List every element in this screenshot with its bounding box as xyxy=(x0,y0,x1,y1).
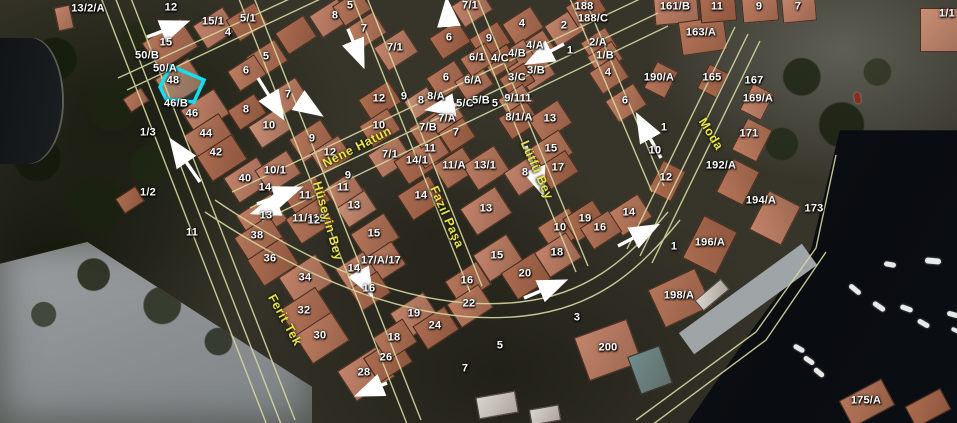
parcel-label: 22 xyxy=(463,299,476,310)
parcel-label: 8/A xyxy=(427,92,445,103)
parcel-label: 6 xyxy=(446,33,452,44)
parcel-label: 7/1 xyxy=(387,43,403,54)
parcel-label: 46/B xyxy=(164,99,188,110)
parcel-label: 12 xyxy=(373,94,386,105)
parcel-label: 11 xyxy=(299,191,311,202)
street-name-label: Moda xyxy=(696,115,726,152)
parcel-label: 40 xyxy=(239,174,252,185)
parcel-label: 4 xyxy=(225,28,231,39)
parcel-label: 11/A xyxy=(442,161,465,172)
parcel-label: 5 xyxy=(347,1,353,12)
parcel-label: 12 xyxy=(165,3,178,14)
parcel-label: 4 xyxy=(519,19,525,30)
parcel-label: 200 xyxy=(599,343,618,354)
parcel-label: 6/A xyxy=(464,76,482,87)
parcel-label: 42 xyxy=(210,148,223,159)
parcel-label: 4/C xyxy=(491,54,509,65)
parcel-label: 48 xyxy=(167,76,180,87)
parcel-label: 50/A xyxy=(153,64,177,75)
parcel-label: 10 xyxy=(649,146,662,157)
parcel-label: 14 xyxy=(348,264,361,275)
parcel-label: 7 xyxy=(285,90,291,101)
parcel-label: 3 xyxy=(574,313,580,324)
parcel-label: 169/A xyxy=(743,94,773,105)
parcel-label: 7 xyxy=(361,24,367,35)
parcel-label: 8/1/A xyxy=(505,113,532,124)
parcel-label: 15 xyxy=(491,251,504,262)
parcel-label: 165 xyxy=(703,73,722,84)
parcel-label: 13 xyxy=(260,211,273,222)
parcel-label: 3/C xyxy=(508,73,526,84)
parcel-label: 46 xyxy=(186,109,199,120)
parcel-label: 188 xyxy=(575,2,594,13)
parcel-label: 19 xyxy=(408,309,421,320)
parcel-label: 1/2 xyxy=(140,188,156,199)
parcel-label: 18 xyxy=(388,333,401,344)
parcel-label: 5 xyxy=(497,341,503,352)
parcel-label: 10 xyxy=(263,121,276,132)
labels-layer: 13/2/A1215/141550/B50/A4846/B461/3444240… xyxy=(0,0,957,423)
parcel-label: 20 xyxy=(519,269,532,280)
parcel-label: 16 xyxy=(461,276,474,287)
parcel-label: 190/A xyxy=(644,73,674,84)
parcel-label: 15 xyxy=(160,38,173,49)
parcel-label: 2/A xyxy=(589,38,607,49)
parcel-label: 8 xyxy=(418,96,424,107)
parcel-label: 9 xyxy=(345,171,351,182)
map-canvas[interactable]: 13/2/A1215/141550/B50/A4846/B461/3444240… xyxy=(0,0,957,423)
parcel-label: 15 xyxy=(545,144,558,155)
parcel-label: 14 xyxy=(259,183,272,194)
parcel-label: 167 xyxy=(745,76,764,87)
parcel-label: 14/1 xyxy=(406,156,428,167)
parcel-label: 11 xyxy=(186,228,198,239)
parcel-label: 196/A xyxy=(695,238,725,249)
parcel-label: 175/A xyxy=(851,396,881,407)
parcel-label: 6/1 xyxy=(469,53,485,64)
parcel-label: 8 xyxy=(522,168,528,179)
parcel-label: 5/B xyxy=(472,96,490,107)
parcel-label: 6 xyxy=(443,73,449,84)
parcel-label: 9 xyxy=(401,92,407,103)
parcel-label: 1/B xyxy=(596,51,614,62)
parcel-label: 1 xyxy=(671,242,677,253)
parcel-label: 12 xyxy=(660,173,673,184)
parcel-label: 18 xyxy=(551,248,564,259)
parcel-label: 10/1 xyxy=(264,166,286,177)
parcel-label: 7/1 xyxy=(462,1,478,12)
parcel-label: 2 xyxy=(561,21,567,32)
parcel-label: 7 xyxy=(795,2,801,13)
street-name-label: Ferit Tek xyxy=(265,292,305,348)
parcel-label: 7/B xyxy=(419,123,437,134)
parcel-label: 6 xyxy=(622,96,628,107)
parcel-label: 34 xyxy=(299,273,312,284)
parcel-label: 14 xyxy=(623,208,636,219)
parcel-label: 38 xyxy=(251,231,264,242)
parcel-label: 173 xyxy=(805,204,824,215)
parcel-label: 7/A xyxy=(438,114,456,125)
parcel-label: 13 xyxy=(348,201,361,212)
parcel-label: 1 xyxy=(661,123,667,134)
parcel-label: 192/A xyxy=(706,161,736,172)
parcel-label: 9 xyxy=(309,134,315,145)
parcel-label: 4/B xyxy=(508,49,526,60)
parcel-label: 171 xyxy=(740,129,759,140)
parcel-label: 7 xyxy=(453,128,459,139)
parcel-label: 188/C xyxy=(578,14,608,25)
parcel-label: 12 xyxy=(308,216,321,227)
parcel-label: 15/1 xyxy=(202,17,224,28)
parcel-label: 16 xyxy=(363,284,376,295)
parcel-label: 15 xyxy=(368,229,381,240)
parcel-label: 4 xyxy=(605,68,611,79)
parcel-label: 5 xyxy=(492,99,498,110)
parcel-label: 198/A xyxy=(664,291,694,302)
parcel-label: 6 xyxy=(243,66,249,77)
parcel-label: 14 xyxy=(415,191,428,202)
parcel-label: 8 xyxy=(332,11,338,22)
parcel-label: 9 xyxy=(486,34,492,45)
parcel-label: 17 xyxy=(552,163,565,174)
parcel-label: 4/A xyxy=(526,41,544,52)
parcel-label: 30 xyxy=(314,331,327,342)
street-name-label: Fazıl Paşa xyxy=(427,184,467,250)
parcel-label: 1/1 xyxy=(939,9,955,20)
parcel-label: 17/A/17 xyxy=(361,256,401,267)
parcel-label: 44 xyxy=(200,129,213,140)
parcel-label: 24 xyxy=(429,321,442,332)
parcel-label: 161/B xyxy=(660,2,690,13)
parcel-label: 36 xyxy=(264,254,277,265)
parcel-label: 9 xyxy=(756,2,762,13)
parcel-label: 32 xyxy=(298,306,311,317)
parcel-label: 9/111 xyxy=(504,94,531,105)
parcel-label: 11 xyxy=(424,144,436,155)
parcel-label: 1/3 xyxy=(140,128,156,139)
parcel-label: 11 xyxy=(337,183,349,194)
parcel-label: 13 xyxy=(480,204,493,215)
parcel-label: 28 xyxy=(358,368,371,379)
parcel-label: 10 xyxy=(554,223,567,234)
parcel-label: 50/B xyxy=(135,51,159,62)
parcel-label: 163/A xyxy=(686,28,716,39)
parcel-label: 7 xyxy=(462,364,468,375)
parcel-label: 1 xyxy=(567,46,573,57)
parcel-label: 5 xyxy=(263,52,269,63)
parcel-label: 13/2/A xyxy=(71,4,105,15)
parcel-label: 194/A xyxy=(746,196,776,207)
parcel-label: 5/1 xyxy=(240,14,256,25)
parcel-label: 13 xyxy=(544,114,557,125)
parcel-label: 19 xyxy=(579,214,592,225)
parcel-label: 3/B xyxy=(527,66,545,77)
parcel-label: 16 xyxy=(594,223,607,234)
parcel-label: 7/1 xyxy=(382,150,398,161)
parcel-label: 26 xyxy=(380,353,393,364)
parcel-label: 11 xyxy=(711,2,723,13)
parcel-label: 8 xyxy=(243,105,249,116)
parcel-label: 13/1 xyxy=(474,161,496,172)
